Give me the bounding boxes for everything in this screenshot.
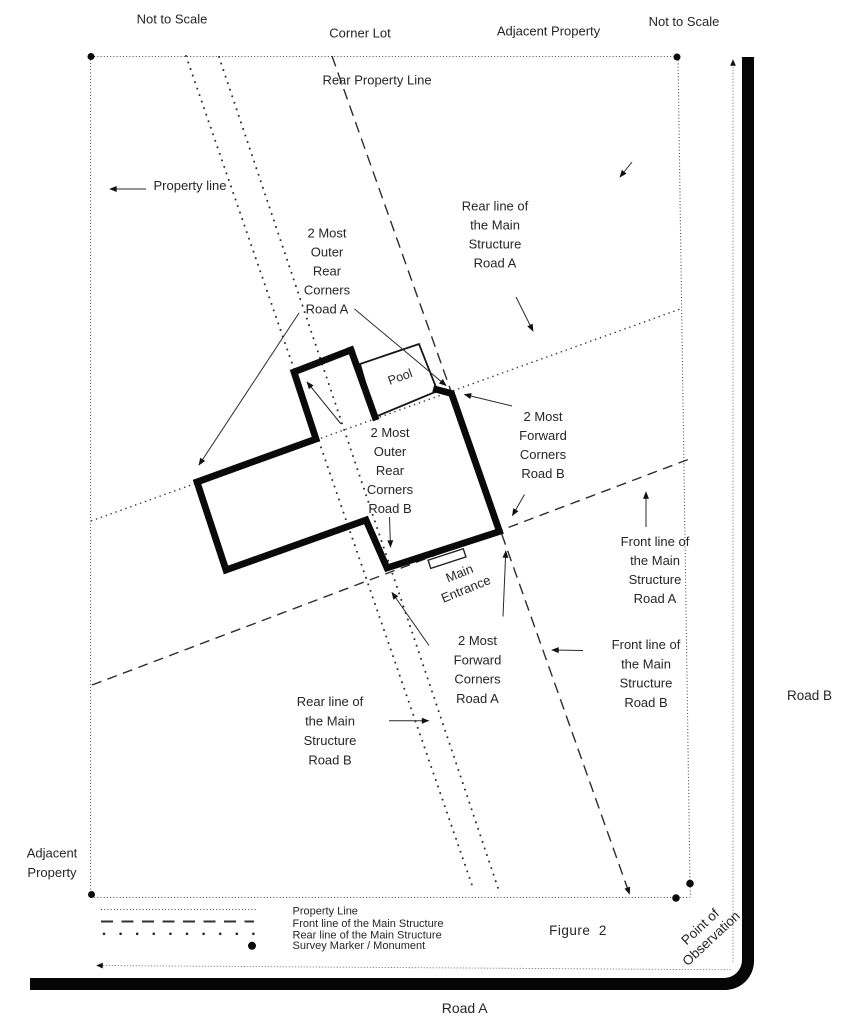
svg-text:Corner Lot: Corner Lot — [329, 26, 391, 41]
svg-text:Property line: Property line — [154, 178, 227, 193]
svg-text:Road B: Road B — [787, 688, 832, 703]
svg-text:Adjacent Property: Adjacent Property — [497, 24, 601, 39]
svg-text:Not to Scale: Not to Scale — [649, 14, 720, 29]
svg-text:Front line of the Main Structu: Front line of the Main Structure — [293, 918, 444, 930]
svg-text:Survey Marker / Monument: Survey Marker / Monument — [293, 940, 426, 952]
svg-text:Not to Scale: Not to Scale — [137, 12, 208, 27]
svg-text:Road A: Road A — [442, 1000, 489, 1016]
svg-text:Figure 2: Figure 2 — [549, 923, 607, 938]
svg-text:Property Line: Property Line — [293, 906, 358, 918]
svg-text:Rear Property Line: Rear Property Line — [322, 73, 431, 88]
